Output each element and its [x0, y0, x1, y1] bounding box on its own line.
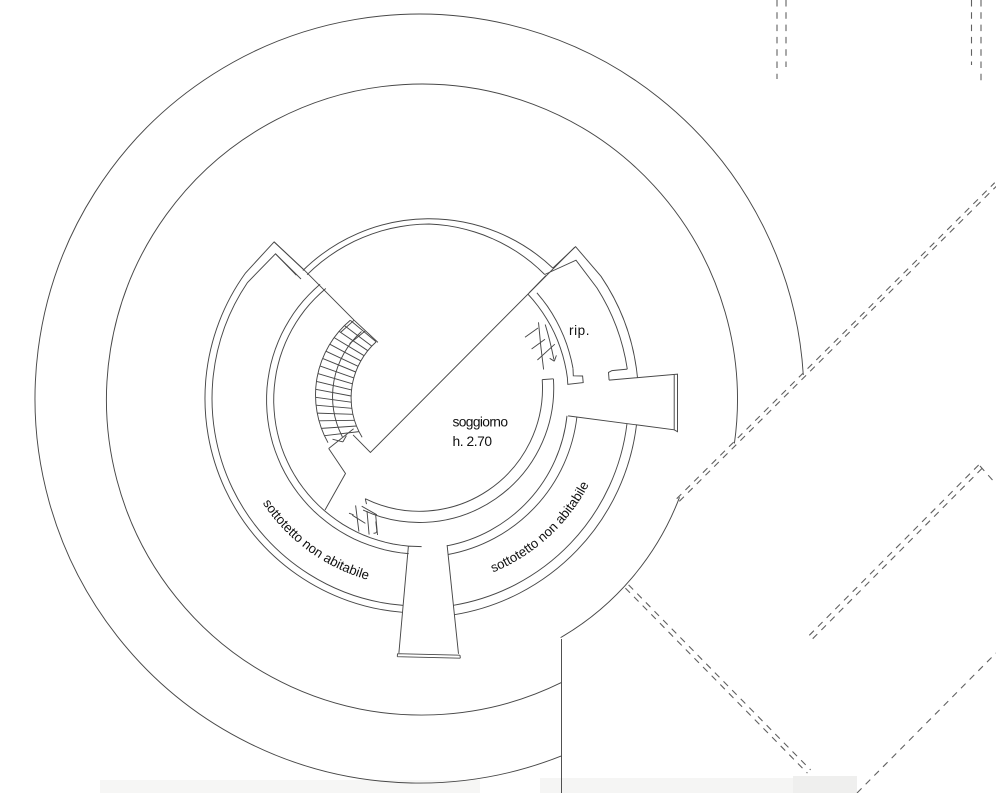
svg-text:soggiorno: soggiorno: [453, 415, 509, 430]
svg-text:rip.: rip.: [569, 323, 590, 338]
svg-text:h. 2.70: h. 2.70: [453, 434, 493, 449]
